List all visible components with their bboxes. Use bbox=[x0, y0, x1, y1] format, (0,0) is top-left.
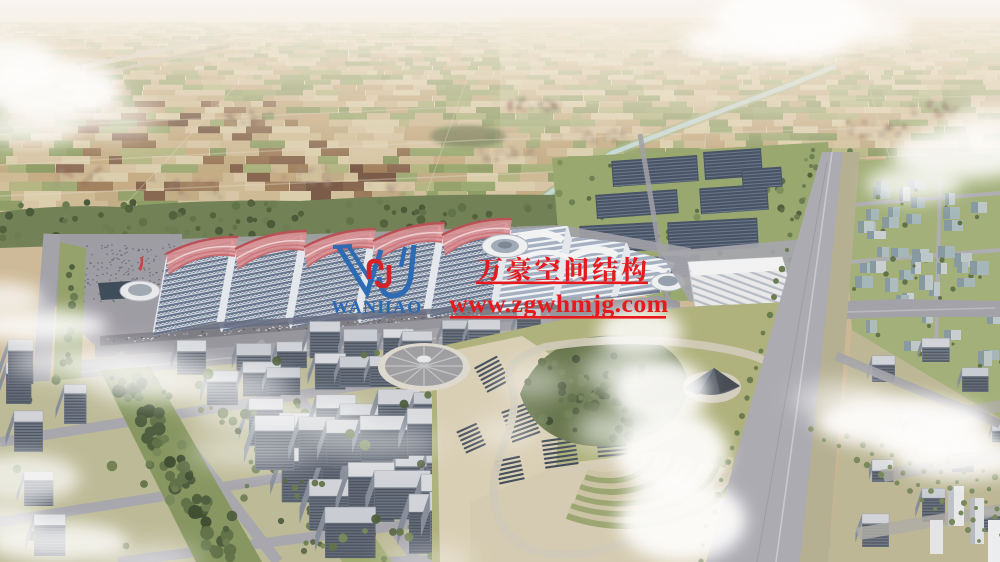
svg-text:www.zgwhmjg.com: www.zgwhmjg.com bbox=[449, 289, 669, 318]
svg-text:WANHAO: WANHAO bbox=[331, 297, 422, 317]
